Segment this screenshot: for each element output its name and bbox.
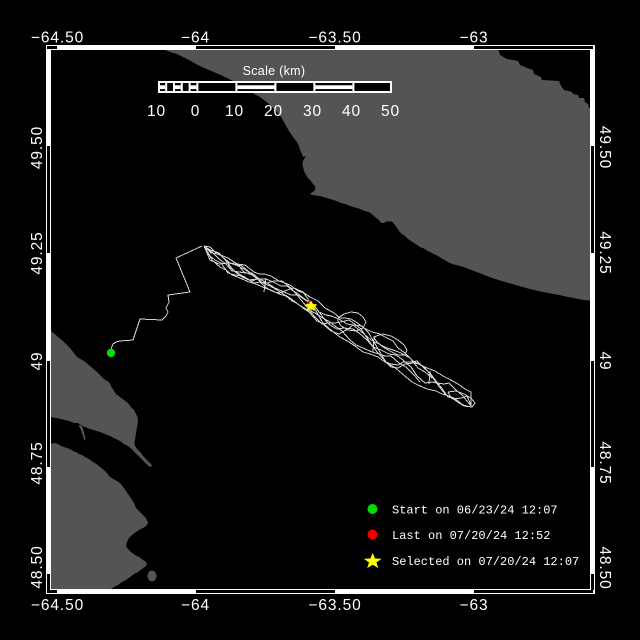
svg-text:20: 20 bbox=[264, 103, 283, 120]
svg-text:48.50: 48.50 bbox=[29, 545, 46, 588]
svg-text:−64.50: −64.50 bbox=[31, 597, 84, 614]
svg-text:48.75: 48.75 bbox=[29, 441, 46, 484]
svg-text:0: 0 bbox=[191, 103, 201, 120]
svg-text:30: 30 bbox=[303, 103, 322, 120]
svg-text:49.50: 49.50 bbox=[596, 126, 613, 169]
svg-text:−63.50: −63.50 bbox=[308, 30, 361, 47]
svg-text:49.50: 49.50 bbox=[29, 126, 46, 169]
svg-text:49.25: 49.25 bbox=[29, 231, 46, 274]
svg-text:Start on 06/23/24 12:07: Start on 06/23/24 12:07 bbox=[392, 504, 558, 518]
svg-text:Selected on 07/20/24 12:07: Selected on 07/20/24 12:07 bbox=[392, 555, 579, 569]
svg-text:−63.50: −63.50 bbox=[308, 597, 361, 614]
svg-text:−64: −64 bbox=[181, 30, 210, 47]
svg-text:−63: −63 bbox=[460, 597, 489, 614]
svg-text:10: 10 bbox=[147, 103, 166, 120]
svg-text:−64: −64 bbox=[181, 597, 210, 614]
svg-text:49: 49 bbox=[596, 351, 613, 370]
svg-text:49.25: 49.25 bbox=[596, 231, 613, 274]
svg-text:−64.50: −64.50 bbox=[31, 30, 84, 47]
svg-text:Scale (km): Scale (km) bbox=[243, 64, 306, 78]
svg-text:48.50: 48.50 bbox=[596, 546, 613, 589]
svg-text:40: 40 bbox=[342, 103, 361, 120]
svg-text:−63: −63 bbox=[460, 30, 489, 47]
svg-text:50: 50 bbox=[381, 103, 400, 120]
svg-text:Last on 07/20/24 12:52: Last on 07/20/24 12:52 bbox=[392, 529, 550, 543]
svg-text:10: 10 bbox=[225, 103, 244, 120]
svg-text:49: 49 bbox=[29, 351, 46, 370]
svg-text:48.75: 48.75 bbox=[596, 441, 613, 484]
